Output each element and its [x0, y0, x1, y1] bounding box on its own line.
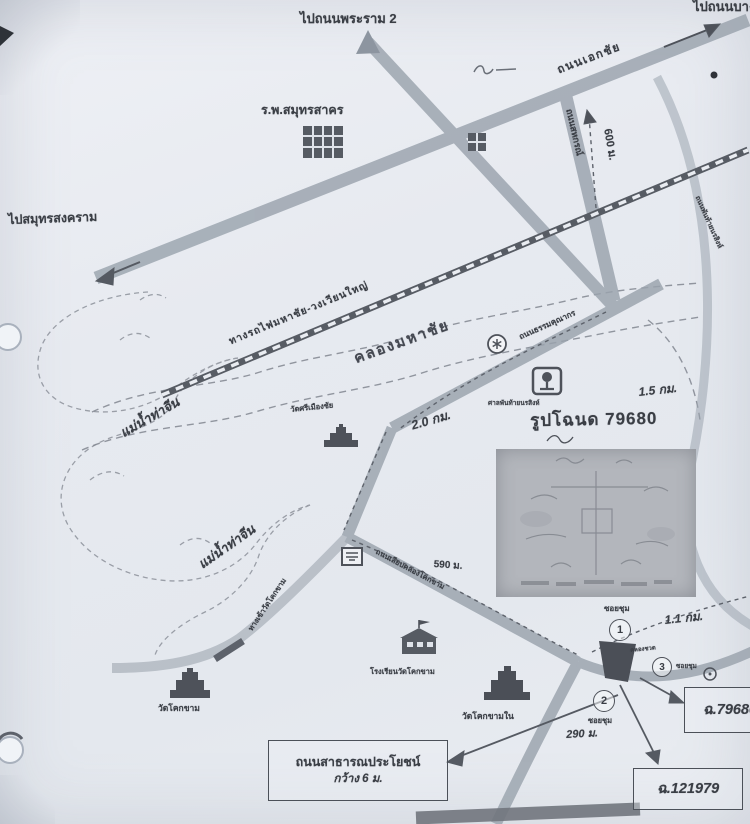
punch-hole-top: [0, 324, 21, 350]
arrow-rama2-head: [356, 30, 380, 54]
building-icon: [468, 133, 486, 151]
signature-mark: [474, 66, 516, 74]
marker-circle-2: 2: [593, 690, 615, 712]
distance-1-1km: 1.1 กม.: [664, 610, 704, 626]
wat-khok-kham-label: วัดโคกขาม: [158, 704, 200, 713]
deed-inset-image: [496, 449, 696, 597]
temple-icon-khok-kham-nai: [484, 666, 530, 700]
public-road-line2: กว้าง 6 ม.: [333, 774, 382, 786]
ink-dot: [711, 72, 718, 79]
scanned-map-document: ไปถนนพระราม 2 ไปถนนบางบอน ไปสมุทรสงคราม …: [0, 0, 750, 824]
star-marker-icon: [488, 335, 506, 353]
public-road-callout-box: ถนนสาธารณประโยชน์ กว้าง 6 ม.: [268, 740, 448, 801]
soi1-label: ซอยชุม: [604, 605, 630, 613]
destination-samut-songkhram: ไปสมุทรสงคราม: [8, 211, 98, 227]
arrow-600m-head: [584, 110, 596, 124]
soi-right-label: ซอยชุม: [676, 664, 697, 671]
school-label: โรงเรียนวัดโคกขาม: [370, 668, 435, 676]
marker-circle-3: 3: [652, 657, 672, 677]
canal-branch-right: [648, 320, 700, 420]
arrow-ref2-head: [646, 750, 660, 764]
shrine-icon: [533, 368, 561, 394]
deed-title: รูปโฉนด 79680: [530, 410, 658, 429]
temple-icon-khok-kham: [170, 668, 210, 698]
handwriting-squiggle: [547, 436, 573, 443]
school-icon: [400, 620, 438, 654]
destination-bang-bon: ไปถนนบางบอน: [693, 0, 750, 13]
deed-ref1-box: ฉ.79680: [684, 687, 750, 733]
road-ekachai-main: [96, 20, 748, 278]
soi2-label: ซอยชุม: [588, 717, 612, 725]
destination-rama2: ไปถนนพระราม 2: [300, 12, 397, 25]
arrow-ref2-line: [620, 685, 654, 753]
edge-notch: [0, 26, 14, 46]
temple-icon-si-mueang: [324, 424, 358, 447]
public-road-line1: ถนนสาธารณประโยชน์: [296, 756, 421, 769]
deed-ref2: ฉ.121979: [657, 782, 719, 797]
arrow-ref1-head: [669, 691, 684, 703]
river-bank-middle: [61, 358, 310, 581]
distance-590m: 590 ม.: [433, 560, 462, 572]
hospital-label: ร.พ.สมุทรสาคร: [261, 104, 343, 117]
sala-icon: [342, 548, 362, 565]
river-bank-upper: [38, 292, 238, 412]
deed-ref1: ฉ.79680: [703, 703, 750, 718]
distance-290m: 290 ม.: [566, 728, 598, 741]
wat-khok-kham-nai-label: วัดโคกขามใน: [462, 712, 514, 721]
arrow-public-road-head: [447, 751, 464, 766]
deed-ref2-box: ฉ.121979: [633, 768, 743, 810]
distance-1-5km: 1.5 กม.: [638, 382, 678, 398]
hospital-icon: [303, 126, 343, 158]
marker-circle-1: 1: [609, 619, 631, 641]
road-bottom-dark-band: [416, 809, 640, 818]
shrine-caption: ศาลพันท้ายนรสิงห์: [488, 401, 540, 408]
punch-hole-bottom: [0, 737, 23, 763]
